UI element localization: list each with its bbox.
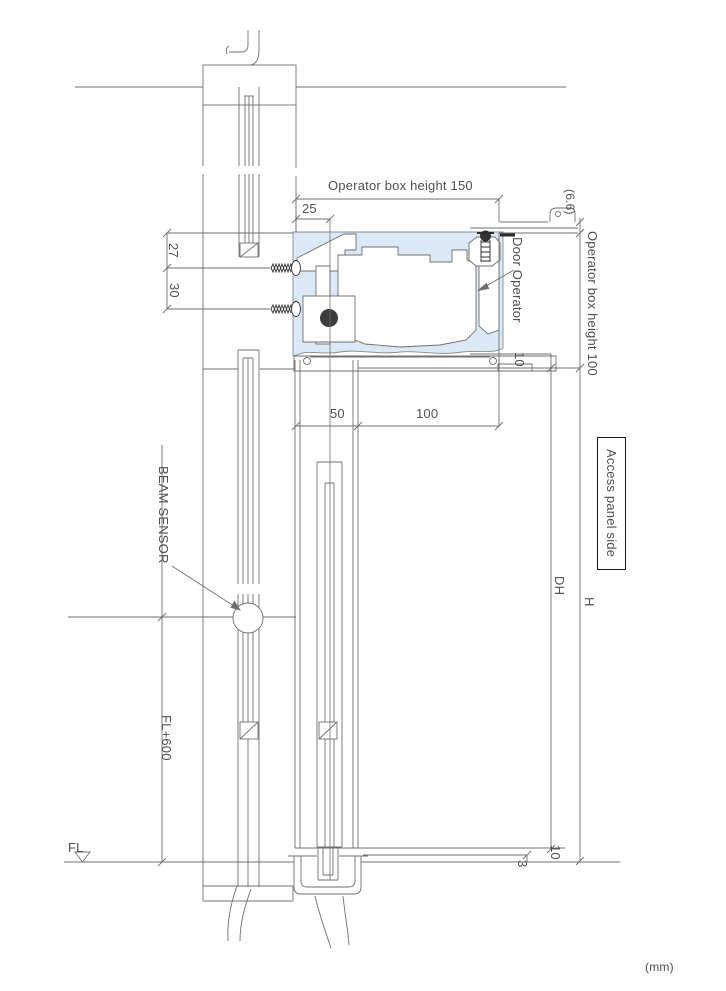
label-fl: FL [68, 840, 84, 855]
label-dim-10-upper: 10 [512, 352, 527, 367]
label-dim-10-lower: 10 [548, 845, 563, 860]
label-unit-mm: (mm) [645, 960, 674, 974]
conduit-pipe [226, 30, 259, 65]
label-dim-3: 3 [515, 860, 530, 867]
label-operator-box-height-100: Operator box height 100 [585, 231, 600, 376]
access-panel-side-box: Access panel side [597, 437, 626, 570]
transom-glass [239, 87, 259, 257]
operator-motor-body [338, 247, 476, 347]
beam-sensor-detail [68, 566, 296, 633]
label-fl-plus-600: FL+600 [159, 715, 174, 761]
label-operator-box-height-150: Operator box height 150 [328, 178, 473, 193]
label-beam-sensor: BEAM SENSOR [156, 466, 171, 564]
door-frame-tube [295, 360, 358, 848]
hanger-roller [320, 309, 338, 327]
label-dim-h: H [582, 597, 597, 607]
label-access-panel-side: Access panel side [604, 449, 619, 557]
operator-box [293, 232, 503, 356]
label-dim-100: 100 [416, 406, 438, 421]
wall-structure [75, 65, 566, 941]
label-dim-25: 25 [302, 201, 317, 216]
floor-guide-channel [288, 856, 368, 948]
label-dim-6-6: (6.6) [563, 189, 577, 215]
label-dim-27: 27 [166, 243, 181, 258]
label-door-operator: Door Operator [510, 237, 525, 323]
label-dim-50: 50 [330, 406, 345, 421]
label-dim-30: 30 [167, 283, 182, 298]
label-dim-dh: DH [552, 576, 567, 595]
cad-drawing-canvas: Operator box height 150 25 27 30 (6.6) O… [0, 0, 726, 991]
